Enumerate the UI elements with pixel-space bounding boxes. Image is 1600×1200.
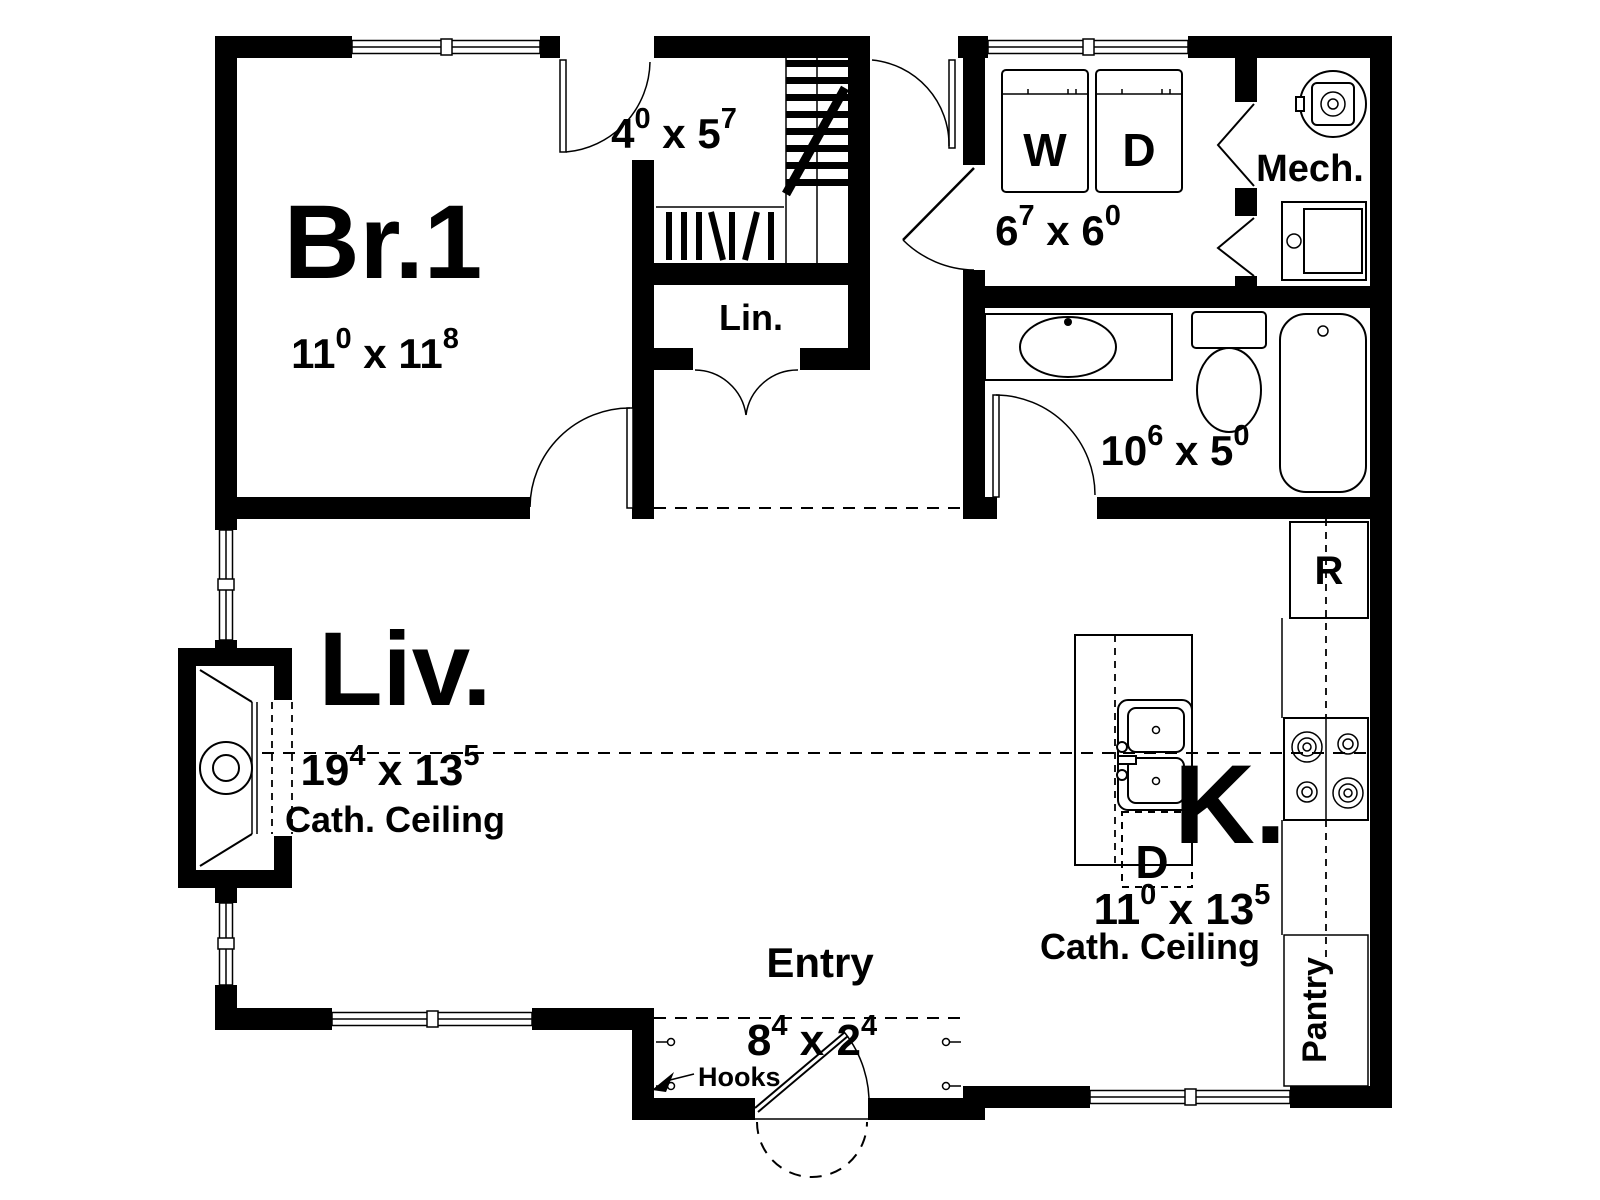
laundry-dim: 67 x 60: [995, 200, 1121, 254]
mechanical-name: Mech.: [1256, 148, 1364, 190]
toilet: [1192, 312, 1266, 432]
living-ceiling: Cath. Ceiling: [285, 799, 505, 840]
floor-plan-page: Br.1 110 x 118 40 x 57 Lin. 67 x 60 Mech…: [0, 0, 1600, 1200]
washer-label: W: [1023, 124, 1067, 176]
entry-name: Entry: [766, 939, 874, 986]
pantry-label: Pantry: [1296, 957, 1334, 1063]
staircase: [786, 58, 848, 263]
living-dim: 194 x 135: [300, 740, 479, 795]
kitchen-name: K.: [1174, 742, 1286, 867]
bathroom-door: [993, 395, 1095, 497]
stair-landing-door: [872, 60, 955, 148]
dishwasher-label: D: [1135, 836, 1168, 888]
water-heater: [1296, 71, 1366, 137]
fireplace: [178, 648, 300, 888]
furnace: [1282, 202, 1366, 280]
laundry-door: [903, 168, 974, 270]
living-left-window-lower: [218, 903, 234, 985]
dryer-label: D: [1122, 124, 1155, 176]
labels: Br.1 110 x 118 40 x 57 Lin. 67 x 60 Mech…: [284, 103, 1364, 1092]
closet-dim: 40 x 57: [611, 103, 737, 157]
living-name: Liv.: [318, 611, 491, 728]
linen-name: Lin.: [719, 297, 783, 338]
vanity-sink: [985, 314, 1172, 380]
kitchen-bottom-window: [1090, 1089, 1290, 1105]
bathtub: [1280, 314, 1366, 492]
bedroom-name: Br.1: [284, 184, 482, 301]
laundry-window: [988, 39, 1188, 55]
bathroom-dim: 106 x 50: [1100, 420, 1249, 474]
closet-rod: [656, 207, 784, 260]
hooks-label: Hooks: [698, 1062, 781, 1092]
living-bottom-window: [332, 1011, 532, 1027]
entry-dim: 84 x 24: [747, 1010, 877, 1065]
bedroom-window: [352, 39, 540, 55]
floor-plan: Br.1 110 x 118 40 x 57 Lin. 67 x 60 Mech…: [0, 0, 1600, 1200]
bedroom-door: [530, 408, 633, 508]
stair-break-line: [786, 88, 845, 194]
living-left-window-upper: [218, 530, 234, 640]
entry-storm-swing-arc: [757, 1122, 867, 1177]
refrigerator-label: R: [1315, 549, 1344, 593]
linen-double-doors: [695, 370, 798, 415]
bedroom-dim: 110 x 118: [291, 323, 459, 377]
kitchen-ceiling: Cath. Ceiling: [1040, 926, 1260, 967]
stove: [1284, 718, 1368, 820]
